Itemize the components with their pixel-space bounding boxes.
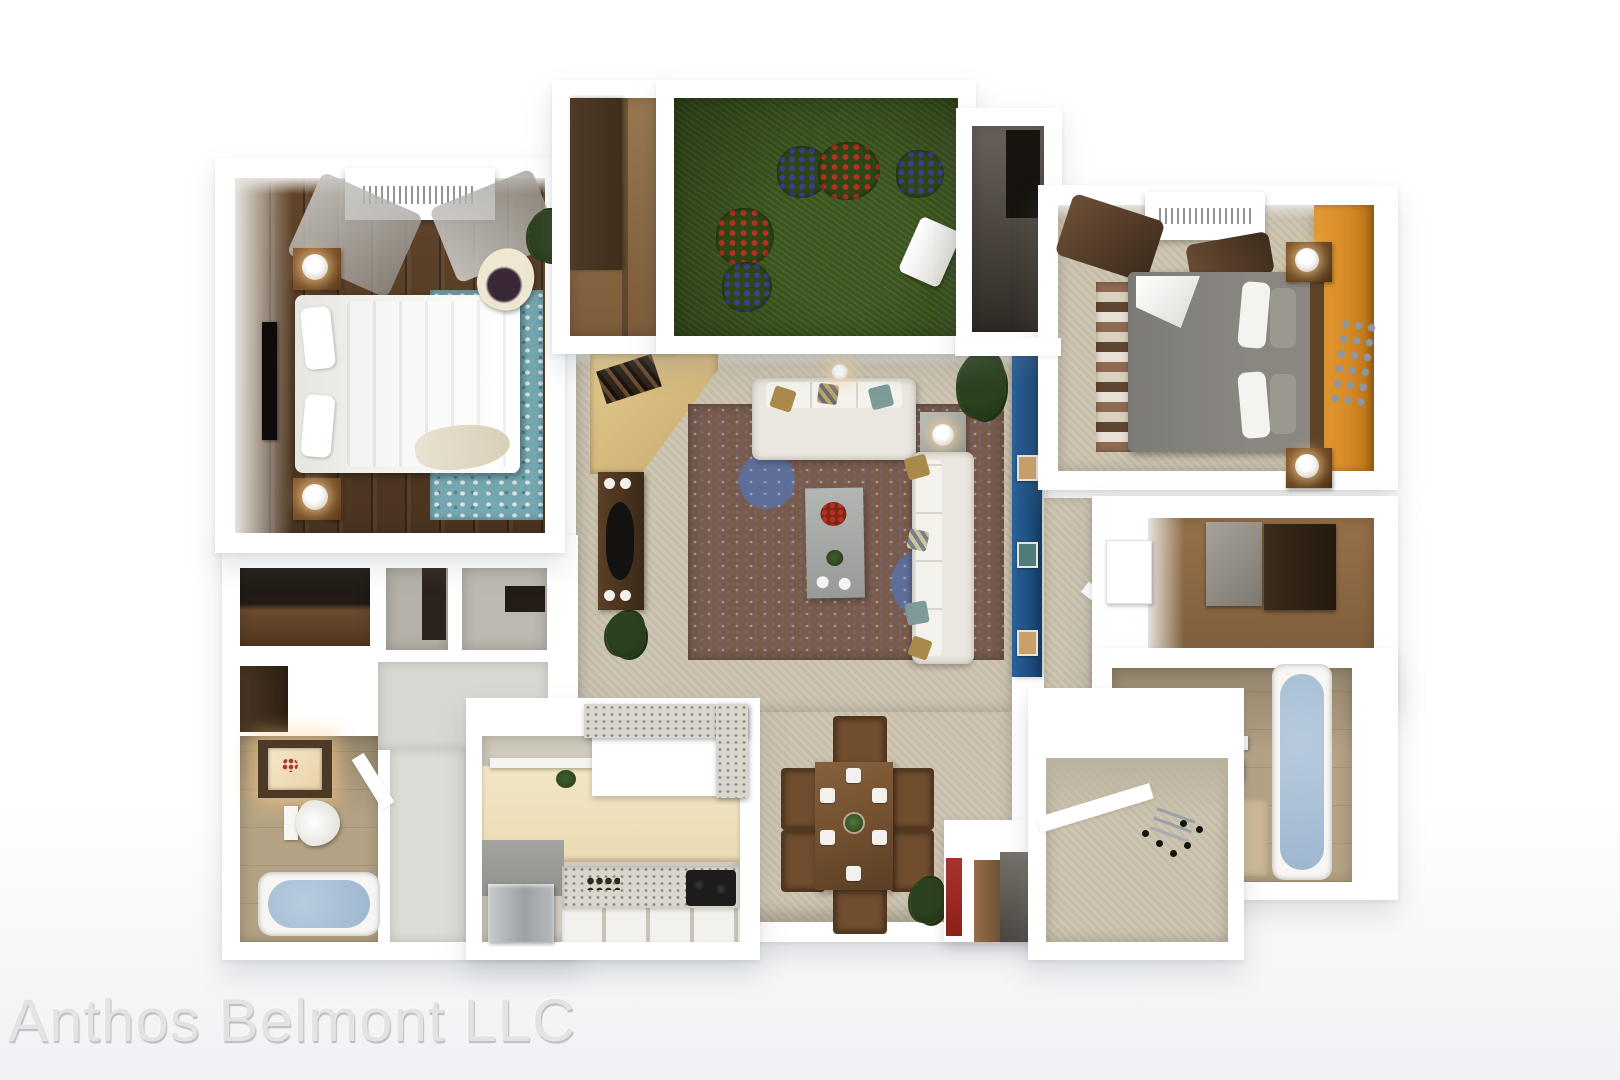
- kitchen-shelf-plant: [556, 770, 576, 788]
- place-setting-1: [846, 768, 861, 783]
- stove: [686, 870, 736, 906]
- bed2-pillow-3: [1270, 288, 1296, 348]
- sofa-right: [912, 452, 974, 664]
- top-closet-floor: [570, 98, 656, 336]
- bathroom1-vanity: [258, 740, 332, 798]
- closet-mid-cabinet: [422, 568, 446, 640]
- coat-hook-6: [1180, 820, 1187, 827]
- burner-2: [714, 882, 728, 896]
- bedroom2-lamp-top: [1295, 248, 1319, 272]
- burner-1: [692, 878, 706, 892]
- bathroom1-toilet: [284, 800, 342, 846]
- wine-bottles: [586, 876, 620, 890]
- place-setting-5: [872, 830, 887, 845]
- master-pillow-1: [300, 306, 336, 371]
- dining-chair-bottom: [833, 886, 887, 934]
- sofa-right-cushions: [916, 460, 942, 656]
- place-setting-4: [820, 830, 835, 845]
- bedroom2-ac-vents: [1159, 208, 1251, 224]
- bed2-pillow-4: [1270, 374, 1296, 434]
- dining-table: [815, 762, 893, 890]
- hall-closet-mid: [386, 568, 448, 650]
- wall-frame-2: [1017, 542, 1038, 568]
- place-setting-3: [872, 788, 887, 803]
- coat-rack: [1140, 812, 1210, 864]
- bathroom2-tub: [1272, 664, 1332, 880]
- table-lamp: [932, 424, 954, 446]
- linen-closet: [240, 666, 288, 732]
- table-cup-1: [817, 576, 829, 588]
- bedroom2-bed: [1128, 272, 1318, 452]
- table-cup-2: [839, 578, 851, 590]
- coat-hook-4: [1184, 842, 1191, 849]
- floorplan-canvas: Anthos Belmont LLC: [0, 0, 1620, 1080]
- sofa-top: [752, 378, 916, 460]
- wall-frame-3: [1017, 630, 1038, 656]
- master-tv: [262, 322, 277, 440]
- closet-right-mirror: [1206, 522, 1262, 606]
- watermark-text: Anthos Belmont LLC: [8, 986, 576, 1055]
- utility-dark-unit: [1006, 130, 1040, 218]
- bed2-headboard: [1310, 266, 1324, 458]
- fridge: [488, 884, 554, 942]
- coat-hook-5: [1196, 826, 1203, 833]
- hall-closet-right: [462, 568, 547, 650]
- console-knob-top: [604, 478, 615, 489]
- place-setting-6: [846, 866, 861, 881]
- place-setting-2: [820, 788, 835, 803]
- top-closet-cabinet: [570, 98, 622, 270]
- bathroom1-tub: [258, 872, 380, 936]
- console-speaker: [606, 502, 634, 580]
- wall-patio-living: [955, 338, 1061, 356]
- coat-hook-3: [1170, 850, 1177, 857]
- utility-interior: [972, 126, 1044, 332]
- bed2-pillow-2: [1237, 371, 1271, 439]
- table-flowers-red: [820, 502, 846, 526]
- console-knob-bottom: [604, 590, 615, 601]
- nightstand-lamp-top: [302, 254, 328, 280]
- dining-chair-right-1: [890, 768, 934, 830]
- vanity-flowers: [282, 758, 298, 772]
- toilet-bowl: [296, 800, 340, 846]
- coffee-table: [805, 488, 865, 599]
- closet-right-cabinet: [1264, 524, 1336, 610]
- coat-hook-2: [1156, 840, 1163, 847]
- top-closet-shelf-line: [622, 98, 628, 336]
- closet-right-shelf: [505, 586, 545, 612]
- coat-hook-1: [1142, 830, 1149, 837]
- hall-closet-wide: [240, 568, 370, 646]
- sofa-right-pillow-2: [906, 528, 930, 552]
- table-plant: [826, 550, 843, 566]
- wall-frame-1: [1017, 455, 1038, 481]
- bed2-pillow-1: [1237, 281, 1271, 349]
- tub2-basin: [1280, 674, 1324, 870]
- bar-counter-return: [716, 704, 748, 798]
- bedroom2-lamp-bottom: [1295, 454, 1319, 478]
- patio-grass: [674, 98, 958, 336]
- nightstand-lamp-bottom: [302, 484, 328, 510]
- closet-right-drawers: [1106, 540, 1152, 604]
- floor-lamp: [832, 364, 848, 380]
- bedroom2-ac-unit: [1145, 192, 1265, 240]
- master-pillow-2: [300, 394, 335, 458]
- tub1-basin: [268, 880, 370, 928]
- sofa-pillow-pattern: [817, 383, 840, 406]
- cabinet-fronts: [562, 908, 740, 942]
- master-bed: [295, 295, 520, 473]
- bedroom2-striped-rug: [1096, 282, 1132, 452]
- table-centerpiece: [845, 814, 863, 832]
- sofa-right-pillow-3: [904, 600, 929, 625]
- hallway-left-vertical: [390, 748, 466, 942]
- alcove-door: [974, 860, 1000, 942]
- water-heater-red: [946, 858, 962, 936]
